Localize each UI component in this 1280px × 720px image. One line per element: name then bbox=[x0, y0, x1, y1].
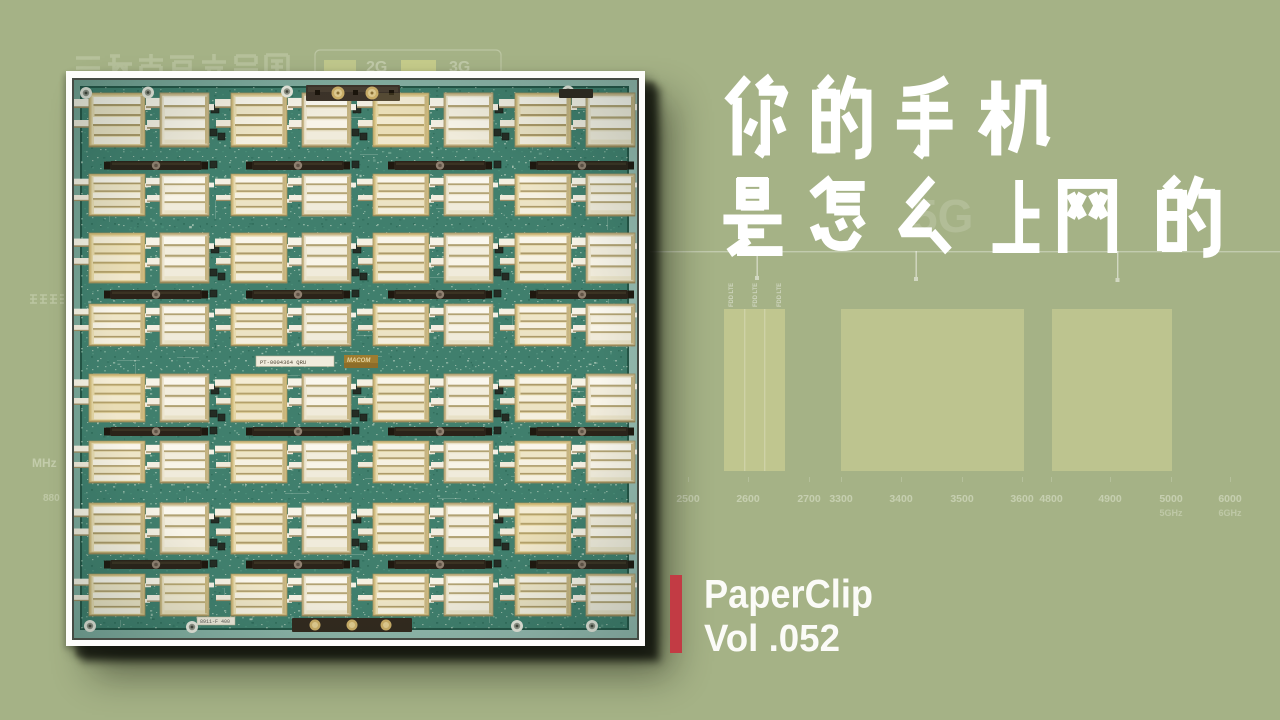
svg-text:PaperClip: PaperClip bbox=[704, 573, 873, 617]
svg-text:Vol .052: Vol .052 bbox=[704, 618, 840, 660]
